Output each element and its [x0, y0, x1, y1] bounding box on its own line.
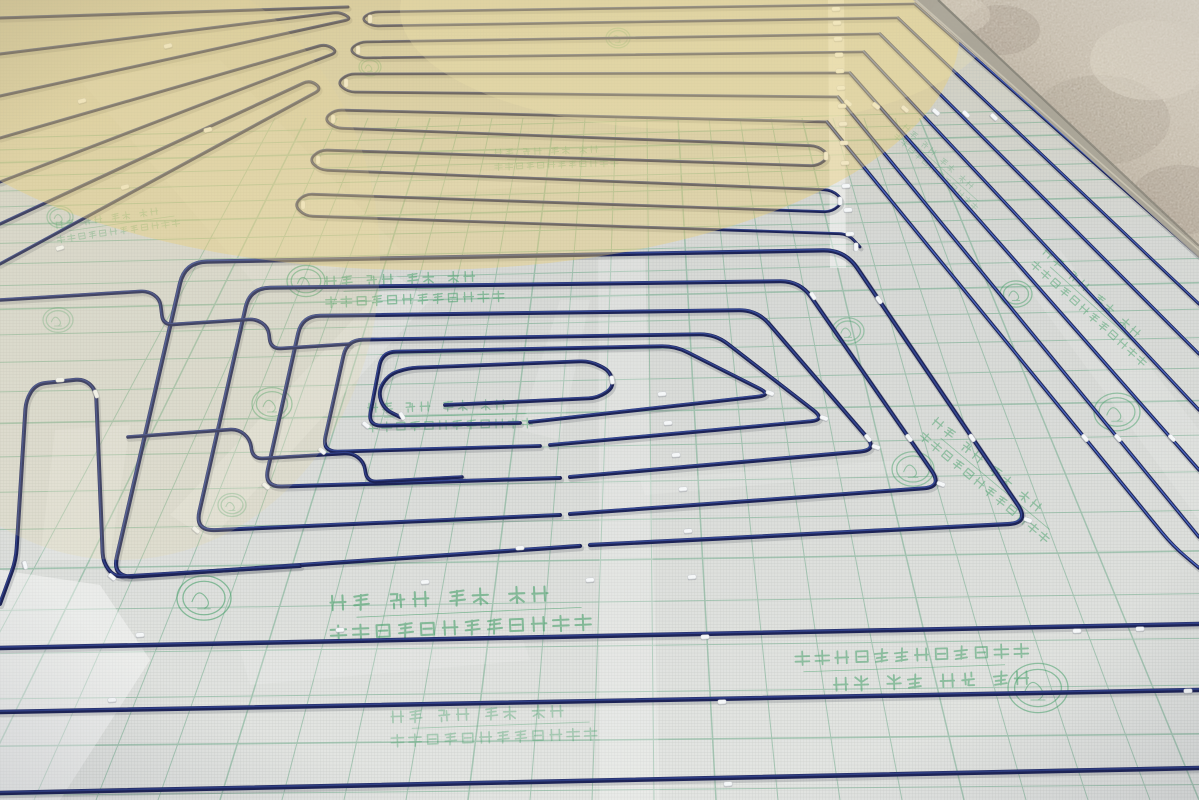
scene-canvas — [0, 0, 1199, 800]
vignette — [0, 0, 1199, 800]
underfloor-heating-photo — [0, 0, 1199, 800]
